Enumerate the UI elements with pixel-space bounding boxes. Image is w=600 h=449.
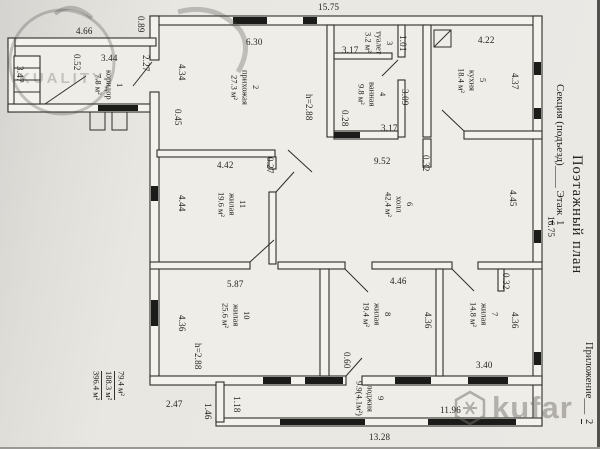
dimension-label: 0.32 [421, 155, 431, 172]
room-label-vannaya: 4 ванная 9.8 м² [356, 82, 388, 106]
room-area: 25.6 м² [220, 303, 231, 328]
appendix-line: Приложение___ 2 [583, 342, 594, 424]
room-name: прихожая [240, 70, 251, 105]
dimension-label: 3.40 [476, 360, 493, 370]
room-area: 27.3 м² [229, 70, 240, 105]
room-area: 3.2 м² [363, 31, 374, 54]
room-area: 9.9(4.1м²) [354, 381, 365, 416]
dimension-label: 2.27 [141, 55, 151, 72]
room-name: кухня [467, 68, 478, 93]
room-area: 42.4 м² [383, 192, 394, 217]
room-label-holl: 6 холл 42.4 м² [383, 192, 415, 217]
dimension-label: 4.37 [510, 73, 520, 90]
room-area: 14.8 м² [468, 302, 479, 327]
room-number: 2 [250, 70, 261, 105]
dimension-label: 4.22 [478, 35, 495, 45]
dimension-label: 3.47 [15, 66, 25, 83]
scanned-floor-plan-sheet: 15.75 4.66 6.30 3.44 3.17 4.22 3.17 9.52… [0, 0, 600, 449]
dimension-label: 0.27 [265, 157, 275, 174]
dimension-label: 4.36 [510, 312, 520, 329]
section-label: Секция (подъезд) [554, 84, 566, 166]
room-area: 9.8 м² [356, 82, 367, 106]
dimension-label: 5.87 [227, 279, 244, 289]
dimension-label: 4.42 [217, 160, 234, 170]
room-number: 3 [384, 31, 395, 54]
room-number: 11 [237, 192, 248, 217]
dimension-label: 3.09 [400, 89, 410, 106]
section-floor-line: Секция (подъезд)____ Этаж 1 [554, 84, 566, 225]
dimension-label: 4.66 [76, 26, 93, 36]
room-name: жилая [227, 192, 238, 217]
room-label-zhilaya-11: 11 жилая 19.6 м² [216, 192, 248, 217]
dimension-label: 9.52 [374, 156, 391, 166]
room-name: холл [394, 192, 405, 217]
appendix-label: Приложение [583, 342, 594, 398]
room-name: лоджия [365, 381, 376, 416]
dimension-label: 0.89 [136, 16, 146, 33]
dimension-label: 4.34 [177, 64, 187, 81]
dimension-label: h=2.88 [193, 343, 203, 370]
blank-line: ___ [583, 398, 594, 414]
dimension-label: 0.45 [173, 109, 183, 126]
dimension-label: h=2.88 [304, 94, 314, 121]
dimension-label: 11.96 [440, 405, 461, 415]
dimension-label: 1.01 [398, 35, 408, 52]
room-name: ванная [367, 82, 378, 106]
room-number: 10 [241, 303, 252, 328]
page-title: Поэтажный план [568, 155, 585, 274]
room-number: 7 [489, 302, 500, 327]
room-label-kuhnya: 5 кухня 18.4 м² [456, 68, 488, 93]
room-name: жилая [231, 303, 242, 328]
room-label-tualet: 3 туалет 3.2 м² [363, 31, 395, 54]
dimension-label: 6.30 [246, 37, 263, 47]
room-name: жилая [372, 302, 383, 327]
room-number: 9 [375, 381, 386, 416]
living-area-value: 79.4 м² [114, 371, 126, 400]
appendix-value: 2 [581, 419, 594, 424]
floor-label: Этаж [554, 190, 566, 215]
dimension-label: 4.44 [177, 195, 187, 212]
dimension-label: 4.36 [423, 312, 433, 329]
total-area-value: 188.3 м² [101, 371, 113, 400]
dimension-label: 4.36 [177, 315, 187, 332]
area-summary: 79.4 м² 188.3 м² 396.4 м² [90, 371, 126, 400]
room-area: 19.6 м² [216, 192, 227, 217]
dimension-label: 4.46 [390, 276, 407, 286]
room-label-zhilaya-8: 8 жилая 19.4 м² [361, 302, 393, 327]
room-area: 18.4 м² [456, 68, 467, 93]
room-name: коридор [104, 70, 115, 100]
room-number: 6 [404, 192, 415, 217]
dimension-label: 0.52 [72, 54, 82, 71]
dimension-label: 13.28 [369, 432, 390, 442]
dimension-label: 0.60 [342, 352, 352, 369]
dimension-label: 15.75 [318, 2, 339, 12]
dimension-label: 3.44 [101, 53, 118, 63]
dimension-label: 0.28 [340, 110, 350, 127]
building-area-value: 396.4 м² [90, 371, 101, 400]
dimension-label: 0.32 [501, 273, 511, 290]
room-number: 5 [477, 68, 488, 93]
dimension-label: 4.45 [508, 190, 518, 207]
dimension-label: 3.17 [381, 123, 398, 133]
dimension-label: 1.46 [203, 403, 213, 420]
room-label-prihozhaya: 2 прихожая 27.3 м² [229, 70, 261, 105]
room-name: туалет [374, 31, 385, 54]
floor-value: 1 [552, 220, 566, 226]
dimension-label: 3.17 [342, 45, 359, 55]
room-label-koridor: 1 коридор 7.8 м² [93, 70, 125, 100]
room-number: 1 [114, 70, 125, 100]
room-name: жилая [479, 302, 490, 327]
room-label-lodzhiya: 9 лоджия 9.9(4.1м²) [354, 381, 386, 416]
room-label-zhilaya-7: 7 жилая 14.8 м² [468, 302, 500, 327]
dimension-label: 2.47 [166, 399, 183, 409]
dimension-label: 1.18 [232, 396, 242, 413]
room-area: 7.8 м² [93, 70, 104, 100]
room-label-zhilaya-10: 10 жилая 25.6 м² [220, 303, 252, 328]
room-area: 19.4 м² [361, 302, 372, 327]
blank-line: ____ [554, 166, 566, 188]
room-number: 4 [377, 82, 388, 106]
room-number: 8 [382, 302, 393, 327]
